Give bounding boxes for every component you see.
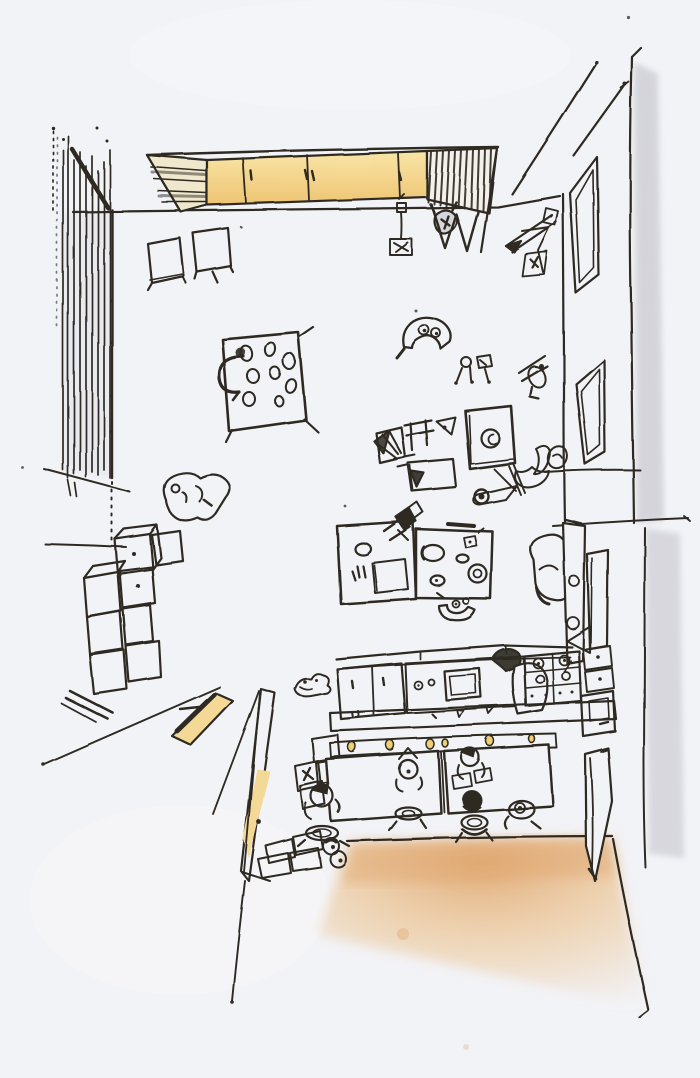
sketch-page bbox=[0, 0, 700, 1078]
cabinet-sliding-doors bbox=[207, 151, 427, 205]
curtain-wash bbox=[62, 209, 113, 478]
paper-sheet bbox=[408, 459, 456, 491]
pencil-shading-lower bbox=[646, 528, 684, 858]
floor-shading-deep-band bbox=[342, 838, 616, 884]
floor-speck bbox=[397, 928, 409, 940]
paper-highlight bbox=[130, 0, 570, 110]
paper-highlight bbox=[30, 805, 330, 995]
dining-table-left bbox=[326, 751, 441, 821]
sketch-canvas bbox=[0, 0, 700, 1078]
floor-speck bbox=[463, 1044, 469, 1050]
